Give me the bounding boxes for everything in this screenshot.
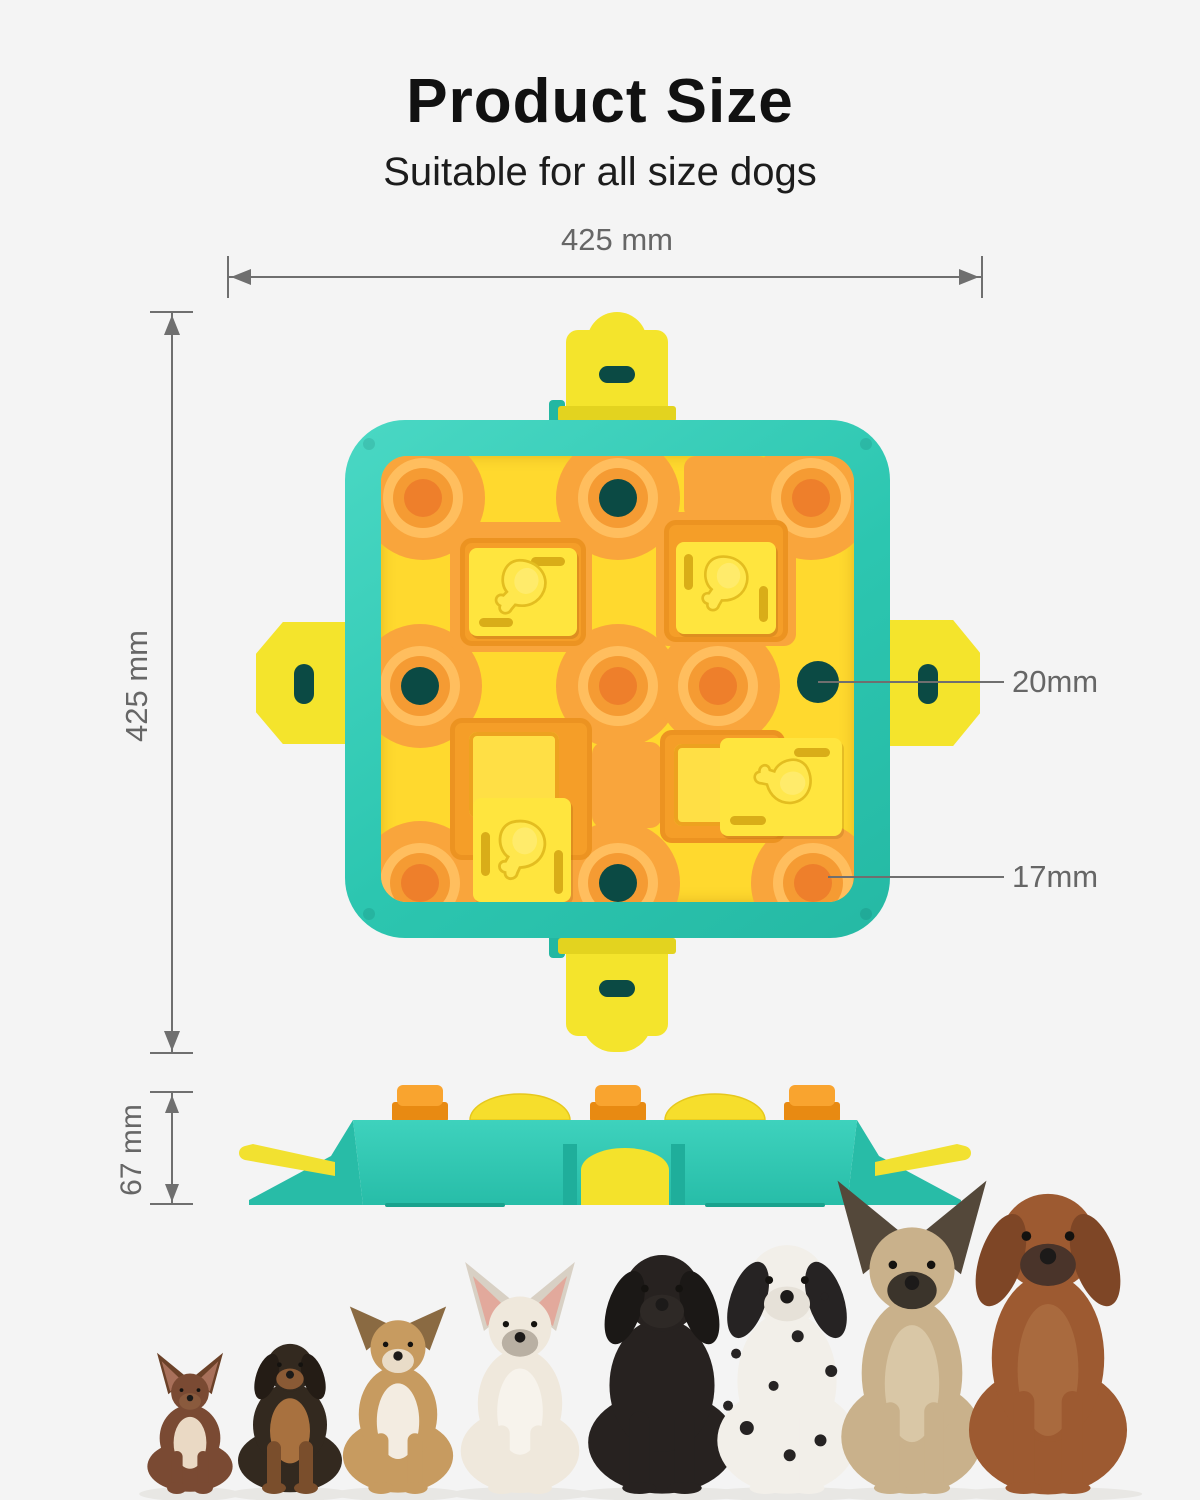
- feeder-hole-well: [578, 458, 658, 538]
- slider-track: [684, 456, 770, 520]
- arrow-left-icon: [231, 269, 251, 285]
- hole-20mm-label: 20mm: [1012, 664, 1098, 700]
- arrow-up-icon: [165, 1095, 179, 1113]
- screw-dot: [860, 438, 872, 450]
- side-tab-right: [884, 620, 980, 746]
- height-dimension-line: [171, 313, 173, 1053]
- well-17mm-label: 17mm: [1012, 859, 1098, 895]
- dog-black-labrador: [574, 1255, 750, 1500]
- dog-sheltie: [332, 1306, 463, 1500]
- dog-french-bulldog: [449, 1262, 590, 1500]
- screw-dot: [363, 438, 375, 450]
- width-dimension-line: [229, 276, 981, 278]
- drumstick-icon: [485, 814, 561, 890]
- drumstick-icon: [688, 548, 765, 625]
- treat-well: [578, 646, 658, 726]
- slider-cover: [473, 798, 571, 902]
- dog-chihuahua: [139, 1353, 241, 1500]
- height-dim-tick-top: [150, 311, 193, 313]
- thickness-dimension-label: 67 mm: [115, 1095, 149, 1205]
- leader-line-17mm: [828, 876, 1004, 878]
- knob-icon: [392, 1085, 840, 1122]
- arrow-down-icon: [165, 1184, 179, 1202]
- arrow-right-icon: [959, 269, 979, 285]
- slider-edge-profile: [665, 1094, 765, 1120]
- product-size-infographic: Product Size Suitable for all size dogs …: [0, 0, 1200, 1500]
- puzzle-panel: [381, 456, 854, 902]
- slider-cover: [720, 738, 842, 836]
- treat-well: [678, 646, 758, 726]
- screw-dot: [860, 908, 872, 920]
- feeder-hole-well: [381, 646, 460, 726]
- leader-line-20mm: [818, 681, 1004, 683]
- width-dimension-label: 425 mm: [462, 222, 772, 258]
- dog-malinois: [828, 1181, 997, 1500]
- thickness-tick-bottom: [150, 1203, 193, 1205]
- page-title: Product Size: [0, 66, 1200, 137]
- slider-cover: [676, 542, 776, 634]
- screw-dot: [363, 908, 375, 920]
- side-wing-right: [875, 1144, 971, 1176]
- drumstick-icon: [743, 745, 822, 824]
- height-dimension-label: 425 mm: [119, 621, 155, 751]
- locking-clip-top: [566, 330, 668, 424]
- arrow-up-icon: [164, 315, 180, 335]
- tab-slot-hole: [294, 664, 314, 704]
- puzzle-feeder-top-view: [345, 420, 890, 938]
- side-wing-left: [239, 1144, 335, 1176]
- dog-rhodesian-ridgeback: [954, 1194, 1142, 1500]
- dog-dachshund: [228, 1344, 352, 1500]
- slider-edge-profile: [470, 1094, 570, 1120]
- height-dim-tick-bottom: [150, 1052, 193, 1054]
- clip-slot-hole: [599, 366, 635, 383]
- side-tab-left: [256, 622, 352, 744]
- page-subtitle: Suitable for all size dogs: [0, 150, 1200, 195]
- thickness-tick-top: [150, 1091, 193, 1093]
- tab-slot-hole: [918, 664, 938, 704]
- slider-track: [592, 742, 662, 828]
- width-dim-tick-left: [227, 256, 229, 298]
- treat-well: [383, 458, 463, 538]
- slider-slot: [759, 586, 768, 622]
- clip-slot-hole: [599, 980, 635, 997]
- width-dim-tick-right: [981, 256, 983, 298]
- dog-dalmatian: [704, 1245, 870, 1500]
- dog-size-lineup: [115, 1178, 1145, 1500]
- locking-clip-bottom: [566, 940, 668, 1036]
- slider-cover: [469, 548, 577, 636]
- arrow-down-icon: [164, 1031, 180, 1051]
